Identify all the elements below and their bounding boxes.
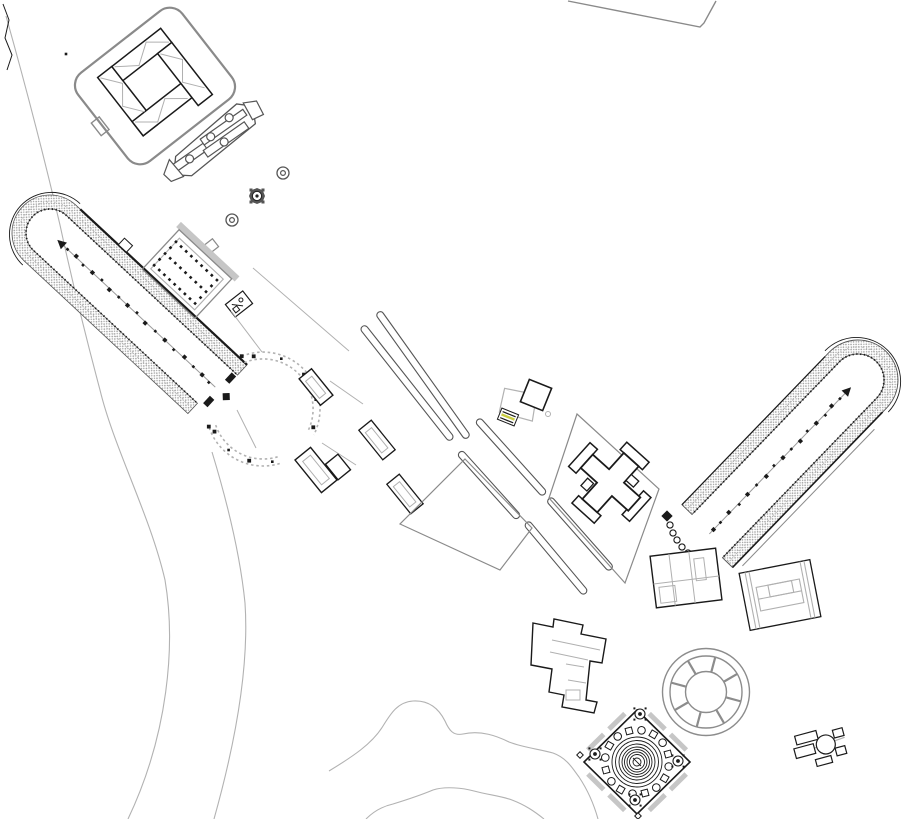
octagonal-monument [249, 188, 265, 204]
survey-target-icon [671, 754, 684, 767]
survey-target-icon [633, 707, 646, 720]
site-plan-canvas [0, 0, 910, 819]
survey-target-icon [588, 747, 601, 760]
survey-target-icon [628, 793, 641, 806]
site-plan-page [0, 0, 910, 819]
south-annex-building [650, 548, 722, 608]
